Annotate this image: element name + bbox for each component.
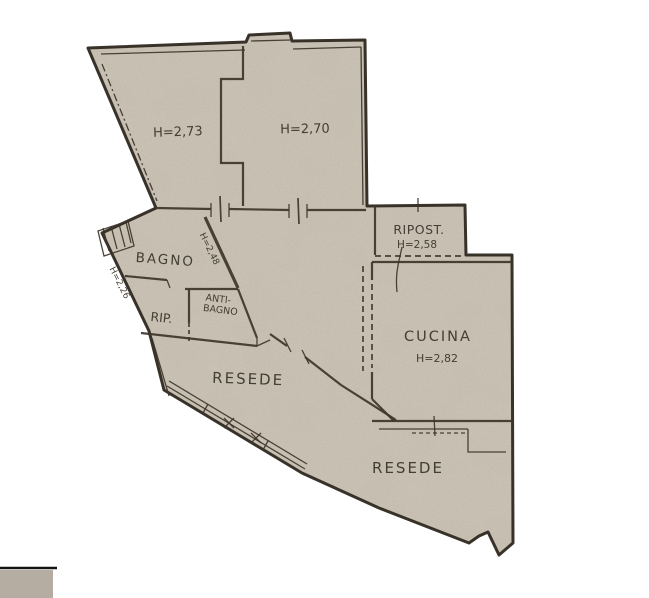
rip-label: RIP. [150,309,173,326]
door-tick-right [298,198,299,224]
floorplan-canvas: H=2,73 H=2,70 RIPOST. H=2,58 BAGNO H=2,4… [0,0,649,598]
resede-central-label: RESEDE [212,369,285,389]
paper-texture [0,0,649,598]
cucina-label: CUCINA [404,329,472,345]
resede-lower-label: RESEDE [372,459,444,477]
scanned-floorplan-page: H=2,73 H=2,70 RIPOST. H=2,58 BAGNO H=2,4… [0,0,649,598]
room-top-left-height-label: H=2,73 [153,124,203,141]
ripost-label: RIPOST. [393,222,444,237]
cucina-height-label: H=2,82 [416,352,458,365]
plan-body [0,0,649,598]
door-tick-left [220,196,221,222]
wall-upper-bottom-1 [156,208,211,209]
room-top-right-height-label: H=2,70 [280,122,330,138]
wall-upper-bottom-2 [229,209,289,210]
ripost-height-label: H=2,58 [397,239,437,251]
scan-artifact-block [0,568,57,598]
